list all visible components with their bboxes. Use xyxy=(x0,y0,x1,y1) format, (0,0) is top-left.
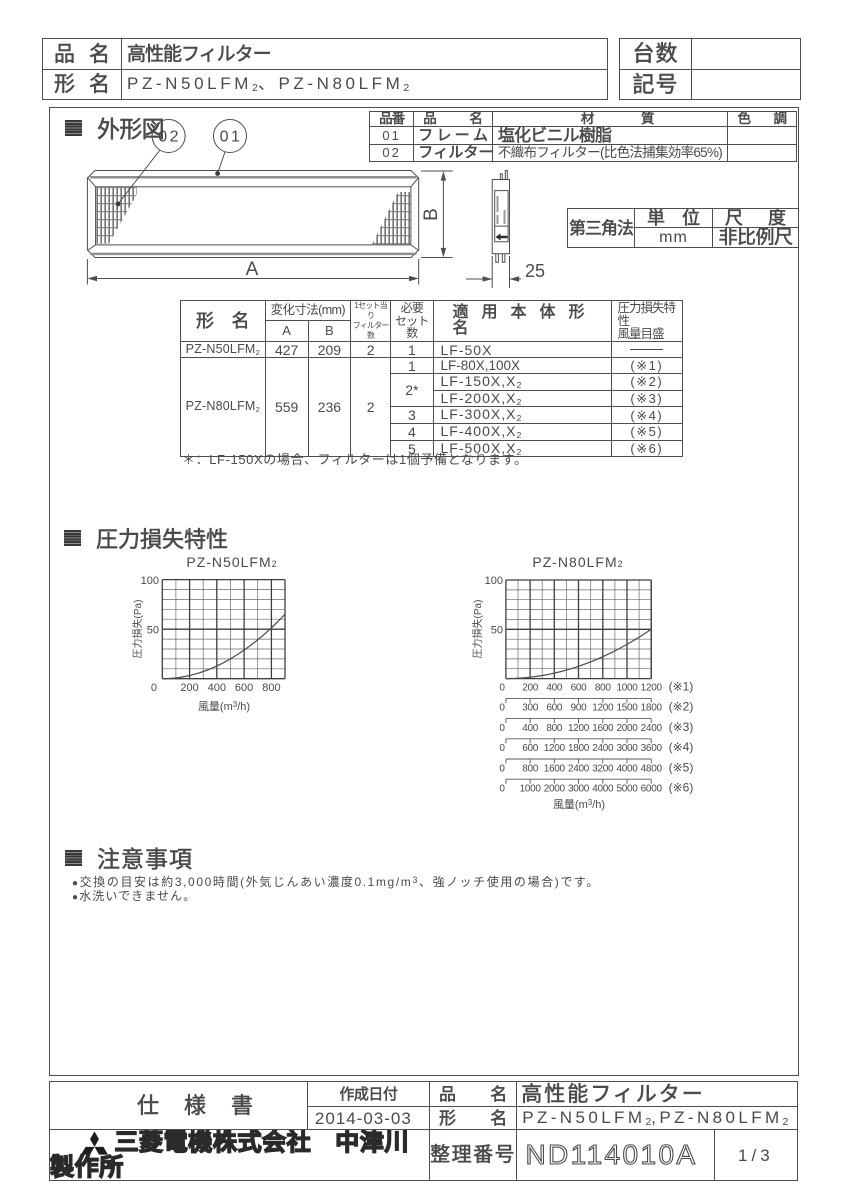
svg-text:4000: 4000 xyxy=(592,784,614,795)
svg-text:4800: 4800 xyxy=(641,763,663,774)
svg-text:風量(m3/h): 風量(m3/h) xyxy=(198,700,250,713)
svg-text:300: 300 xyxy=(522,703,539,714)
svg-text:200: 200 xyxy=(522,683,539,694)
svg-text:2000: 2000 xyxy=(616,723,638,734)
svg-text:800: 800 xyxy=(522,763,539,774)
svg-text:PZ-N80LFM2: PZ-N80LFM2 xyxy=(532,554,623,570)
svg-text:1200: 1200 xyxy=(568,723,590,734)
svg-text:1000: 1000 xyxy=(616,683,638,694)
svg-text:(※3): (※3) xyxy=(669,720,694,734)
svg-text:400: 400 xyxy=(522,723,539,734)
svg-text:1600: 1600 xyxy=(592,723,614,734)
svg-text:(※6): (※6) xyxy=(669,781,694,795)
svg-text:01: 01 xyxy=(220,129,243,146)
svg-text:(※5): (※5) xyxy=(669,760,694,774)
svg-text:1800: 1800 xyxy=(568,743,590,754)
svg-text:100: 100 xyxy=(485,575,503,587)
svg-text:100: 100 xyxy=(141,575,159,587)
svg-text:1200: 1200 xyxy=(544,743,566,754)
svg-text:0: 0 xyxy=(499,784,505,795)
svg-text:2400: 2400 xyxy=(592,743,614,754)
svg-text:4000: 4000 xyxy=(616,763,638,774)
svg-text:6000: 6000 xyxy=(641,784,663,795)
svg-text:0: 0 xyxy=(499,723,505,734)
svg-text:圧力損失(Pa): 圧力損失(Pa) xyxy=(471,600,484,659)
svg-text:200: 200 xyxy=(180,682,198,694)
svg-text:600: 600 xyxy=(235,682,253,694)
svg-text:PZ-N50LFM2: PZ-N50LFM2 xyxy=(186,554,277,570)
svg-text:600: 600 xyxy=(522,743,539,754)
svg-text:0: 0 xyxy=(151,682,157,694)
svg-text:25: 25 xyxy=(525,261,545,281)
svg-text:0: 0 xyxy=(499,683,505,694)
svg-text:0: 0 xyxy=(499,743,505,754)
svg-text:B: B xyxy=(421,208,442,221)
svg-text:(※2): (※2) xyxy=(669,700,694,714)
svg-text:3000: 3000 xyxy=(616,743,638,754)
svg-text:50: 50 xyxy=(491,625,503,637)
svg-text:(※4): (※4) xyxy=(669,740,694,754)
svg-text:800: 800 xyxy=(262,682,280,694)
svg-text:A: A xyxy=(246,259,259,280)
svg-text:50: 50 xyxy=(147,625,159,637)
svg-text:1600: 1600 xyxy=(544,763,566,774)
svg-text:風量(m3/h): 風量(m3/h) xyxy=(553,798,605,811)
svg-text:(※1): (※1) xyxy=(669,680,694,694)
svg-text:02: 02 xyxy=(158,129,181,146)
svg-text:0: 0 xyxy=(499,763,505,774)
svg-text:0: 0 xyxy=(499,703,505,714)
svg-text:3600: 3600 xyxy=(641,743,663,754)
svg-text:800: 800 xyxy=(595,683,612,694)
svg-text:600: 600 xyxy=(546,703,563,714)
svg-text:1500: 1500 xyxy=(616,703,638,714)
svg-text:2400: 2400 xyxy=(568,763,590,774)
svg-text:400: 400 xyxy=(546,683,563,694)
svg-text:600: 600 xyxy=(571,683,588,694)
svg-text:1000: 1000 xyxy=(520,784,542,795)
svg-text:1200: 1200 xyxy=(641,683,663,694)
svg-text:3200: 3200 xyxy=(592,763,614,774)
svg-text:400: 400 xyxy=(208,682,226,694)
svg-text:2000: 2000 xyxy=(544,784,566,795)
svg-text:5000: 5000 xyxy=(616,784,638,795)
svg-text:2400: 2400 xyxy=(641,723,663,734)
svg-text:900: 900 xyxy=(571,703,588,714)
svg-text:3000: 3000 xyxy=(568,784,590,795)
svg-text:1800: 1800 xyxy=(641,703,663,714)
svg-text:1200: 1200 xyxy=(592,703,614,714)
svg-text:圧力損失(Pa): 圧力損失(Pa) xyxy=(131,600,144,659)
svg-text:800: 800 xyxy=(546,723,563,734)
